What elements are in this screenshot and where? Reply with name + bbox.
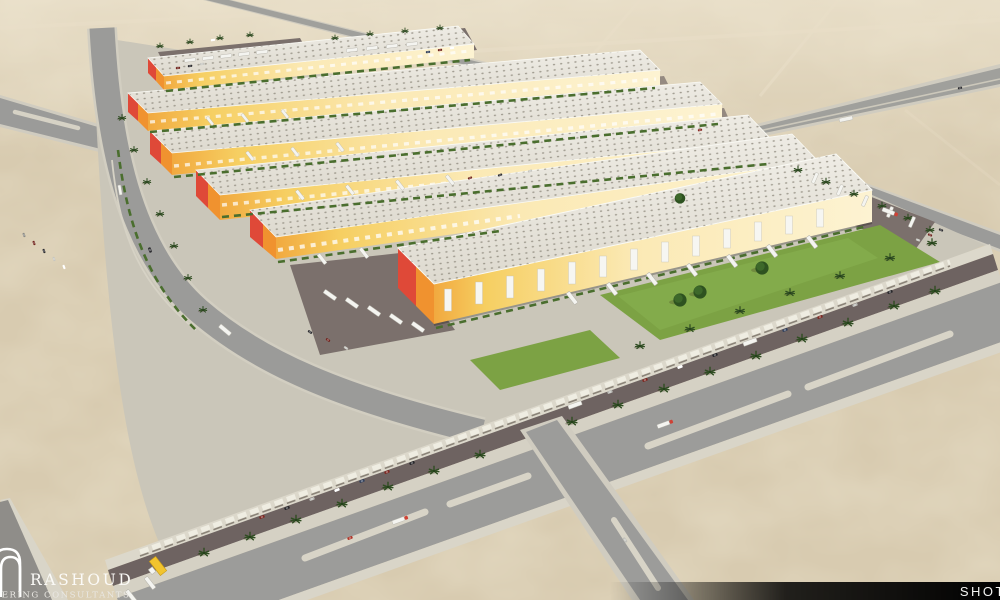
aerial-render-canvas: SHOT RASHOUD EERING CONSULTANTS <box>0 0 1000 600</box>
architectural-render-image: SHOT RASHOUD EERING CONSULTANTS <box>0 0 1000 600</box>
shot-label: SHOT <box>960 584 1000 599</box>
logo-title: RASHOUD <box>30 571 133 589</box>
shot-bar: SHOT <box>610 582 1000 600</box>
logo-subtitle: EERING CONSULTANTS <box>0 591 130 600</box>
